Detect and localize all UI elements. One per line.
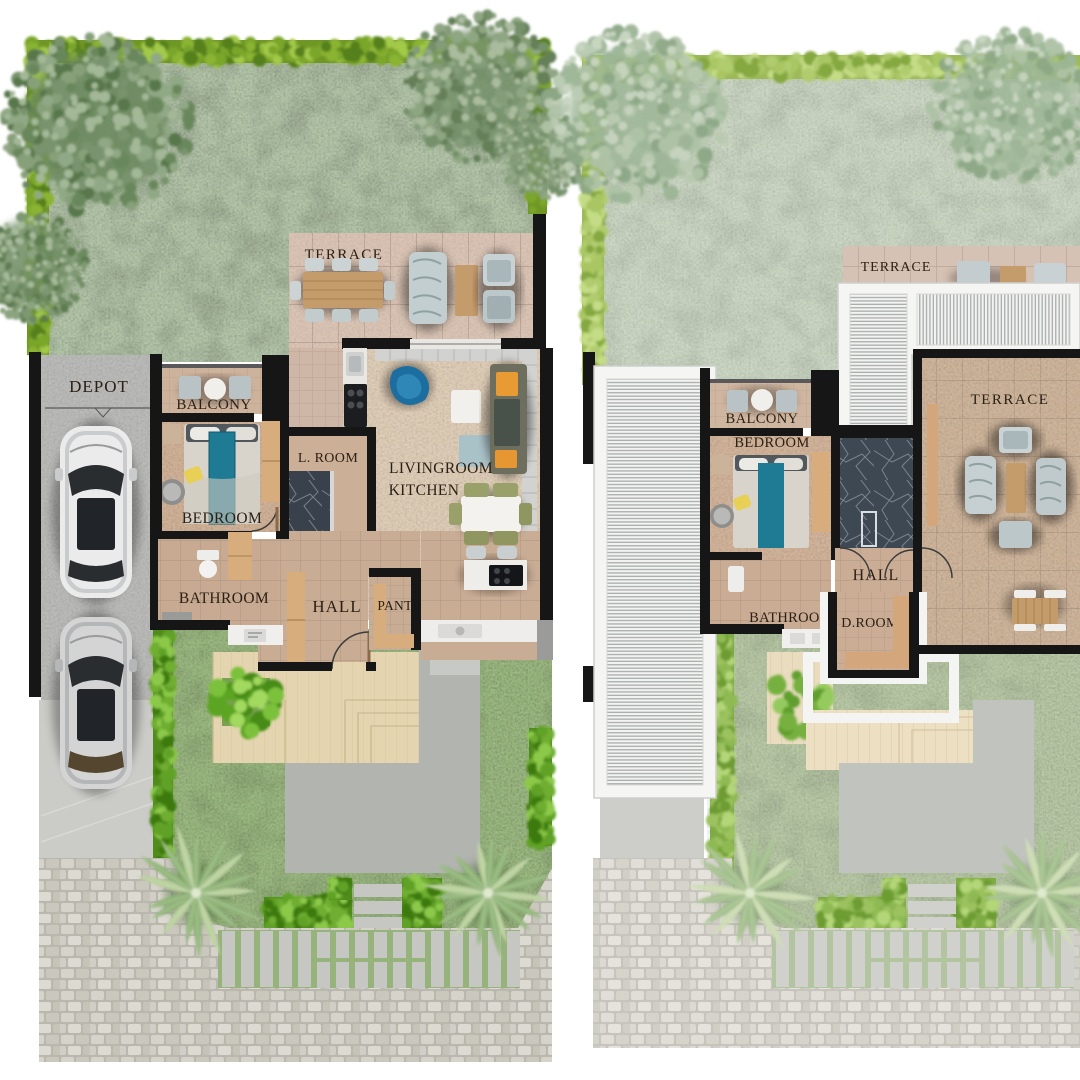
- svg-text:BATHROOM: BATHROOM: [179, 590, 269, 607]
- svg-text:LIVINGROOM: LIVINGROOM: [389, 460, 493, 477]
- svg-text:BEDROOM: BEDROOM: [734, 435, 809, 451]
- svg-text:BALCONY: BALCONY: [726, 411, 799, 427]
- svg-text:DEPOT: DEPOT: [69, 377, 129, 396]
- svg-text:PANT: PANT: [377, 598, 413, 613]
- svg-text:D.ROOM: D.ROOM: [841, 616, 899, 631]
- svg-text:L. ROOM: L. ROOM: [298, 451, 359, 466]
- svg-text:TERRACE: TERRACE: [861, 260, 932, 275]
- svg-text:KITCHEN: KITCHEN: [389, 482, 460, 499]
- svg-text:BALCONY: BALCONY: [176, 397, 251, 413]
- svg-text:TERRACE: TERRACE: [971, 392, 1050, 408]
- svg-text:BEDROOM: BEDROOM: [182, 510, 262, 527]
- svg-text:HALL: HALL: [853, 567, 900, 584]
- svg-text:HALL: HALL: [312, 597, 361, 616]
